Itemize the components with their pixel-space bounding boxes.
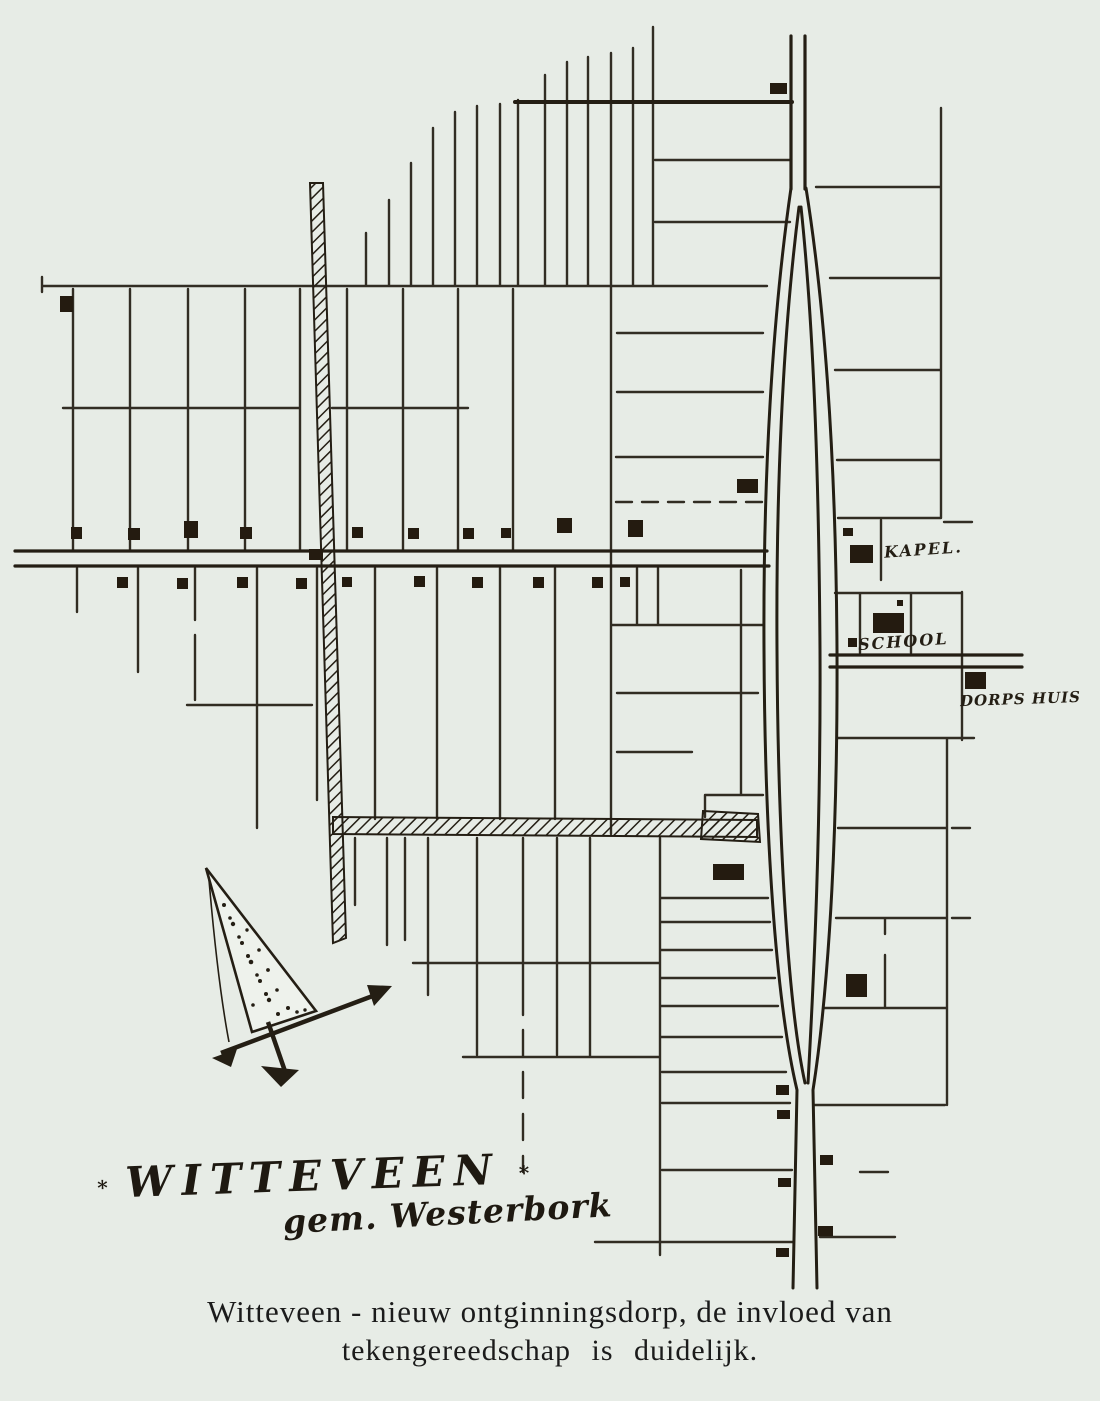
canal-icon: [310, 183, 760, 943]
title-star-right-icon: ∗: [517, 1156, 532, 1180]
parcel-grid-lines: [42, 27, 974, 1255]
figure-caption: Witteveen - nieuw ontginningsdorp, de in…: [0, 1294, 1100, 1368]
caption-line-1: Witteveen - nieuw ontginningsdorp, de in…: [0, 1294, 1100, 1330]
map-title-block: ∗ WITTEVEEN ∗ gem. Westerbork: [95, 1141, 614, 1245]
caption-line-2: tekengereedschap is duidelijk.: [0, 1334, 1100, 1368]
title-star-left-icon: ∗: [95, 1171, 110, 1195]
scanned-map-page: KAPEL. SCHOOL DORPS HUIS ∗ WITTEVEEN ∗ g…: [0, 0, 1100, 1401]
north-arrow-icon: [206, 868, 392, 1087]
